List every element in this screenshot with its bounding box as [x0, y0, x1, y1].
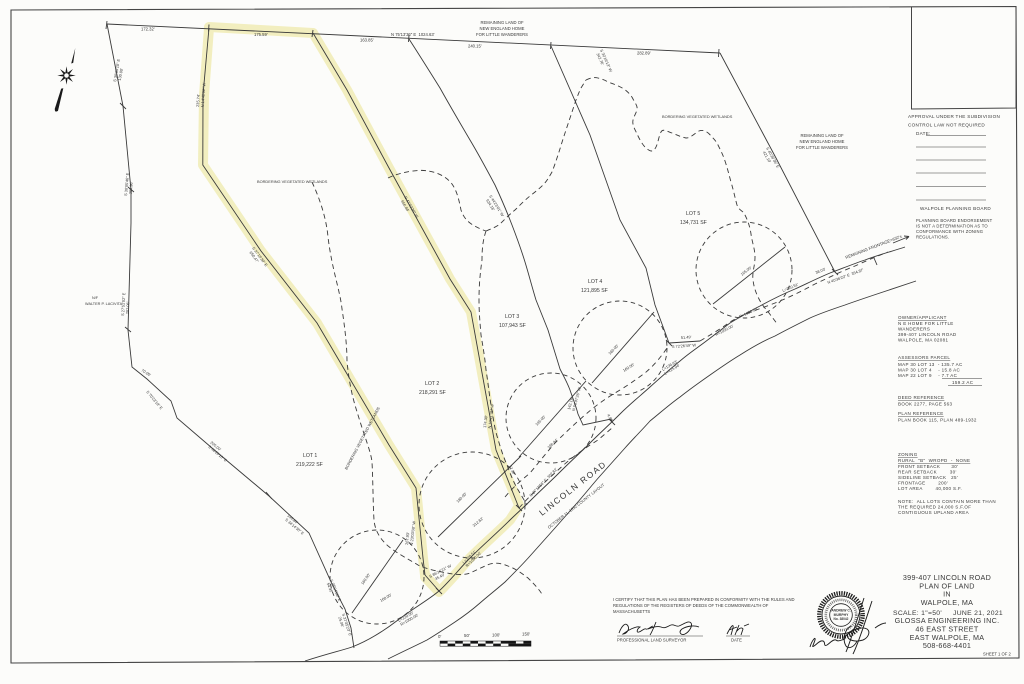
- svg-text:LOT 5: LOT 5: [686, 211, 700, 217]
- svg-text:SHEET 1 OF 2: SHEET 1 OF 2: [983, 652, 1012, 657]
- svg-text:163.85': 163.85': [360, 38, 374, 43]
- svg-text:WANDERERS: WANDERERS: [898, 327, 930, 332]
- svg-text:50': 50': [464, 633, 470, 638]
- svg-text:202.06': 202.06': [125, 301, 131, 314]
- svg-text:THE REQUIRED 24,000 S.F.OF: THE REQUIRED 24,000 S.F.OF: [898, 505, 971, 510]
- svg-text:150': 150': [522, 632, 530, 637]
- svg-text:LOT AREA 40,000 S.F.: LOT AREA 40,000 S.F.: [898, 486, 962, 491]
- svg-text:51.49': 51.49': [681, 334, 692, 340]
- svg-text:MAP 30 LOT 4 - 15.8 AC: MAP 30 LOT 4 - 15.8 AC: [898, 368, 961, 373]
- svg-text:FRONT SETBACK 30': FRONT SETBACK 30': [898, 464, 958, 469]
- svg-text:107,943 SF: 107,943 SF: [499, 323, 526, 329]
- svg-text:N E HOME FOR LITTLE: N E HOME FOR LITTLE: [898, 321, 954, 326]
- svg-text:121,895 SF: 121,895 SF: [581, 288, 608, 294]
- svg-text:I CERTIFY THAT THIS PLAN HAS B: I CERTIFY THAT THIS PLAN HAS BEEN PREPAR…: [613, 597, 795, 602]
- svg-text:REGULATIONS OF THE REGISTERS O: REGULATIONS OF THE REGISTERS OF DEEDS OF…: [613, 603, 769, 608]
- svg-text:0': 0': [438, 634, 441, 639]
- svg-text:100': 100': [492, 633, 500, 638]
- svg-text:FRONTAGE 200': FRONTAGE 200': [898, 481, 948, 486]
- svg-text:DATE: DATE: [731, 638, 742, 643]
- svg-text:WALPOLE, MA: WALPOLE, MA: [921, 598, 974, 607]
- svg-text:REAR SETBACK 30': REAR SETBACK 30': [898, 470, 957, 475]
- svg-text:MURPHY: MURPHY: [834, 613, 849, 617]
- svg-text:NEW ENGLAND HOME: NEW ENGLAND HOME: [480, 26, 525, 31]
- svg-text:159.2 AC: 159.2 AC: [952, 380, 974, 385]
- svg-text:134,731 SF: 134,731 SF: [680, 220, 707, 226]
- svg-text:FOR LITTLE WANDERERS: FOR LITTLE WANDERERS: [796, 145, 848, 150]
- svg-text:BOOK 2277, PAGE 563: BOOK 2277, PAGE 563: [898, 402, 952, 407]
- svg-text:NOTE: ALL LOTS CONTAIN MORE T: NOTE: ALL LOTS CONTAIN MORE THAN: [898, 499, 996, 504]
- svg-text:No. 38042: No. 38042: [834, 617, 849, 621]
- svg-text:SIDELINE SETBACK 25': SIDELINE SETBACK 25': [898, 475, 958, 480]
- svg-text:ASSESSORS PARCEL: ASSESSORS PARCEL: [898, 355, 950, 360]
- svg-text:WALPOLE, MA 02081: WALPOLE, MA 02081: [898, 338, 948, 343]
- svg-text:BORDERING VEGETATED WETLANDS: BORDERING VEGETATED WETLANDS: [662, 114, 733, 119]
- svg-text:MAP 30 LOT 13 - 135.7 AC: MAP 30 LOT 13 - 135.7 AC: [898, 362, 963, 367]
- svg-text:LOT 1: LOT 1: [303, 453, 317, 459]
- svg-text:REMAINING LAND OF: REMAINING LAND OF: [480, 20, 523, 25]
- svg-text:PLAN REFERENCE: PLAN REFERENCE: [898, 411, 944, 416]
- svg-text:CONTIGUOUS UPLAND AREA: CONTIGUOUS UPLAND AREA: [898, 510, 969, 515]
- svg-text:219,222 SF: 219,222 SF: [296, 462, 323, 468]
- svg-text:LOT 2: LOT 2: [425, 381, 439, 387]
- svg-text:N 75'13'36" E 1024.63': N 75'13'36" E 1024.63': [391, 32, 435, 37]
- svg-text:172.32': 172.32': [141, 27, 155, 32]
- svg-text:CONFORMANCE WITH ZONING: CONFORMANCE WITH ZONING: [916, 229, 983, 234]
- svg-text:IS NOT A DETERMINATION AS TO: IS NOT A DETERMINATION AS TO: [916, 224, 988, 229]
- svg-text:WALTER P. LACIVITA: WALTER P. LACIVITA: [85, 302, 123, 306]
- svg-text:399-407 LINCOLN ROAD: 399-407 LINCOLN ROAD: [898, 332, 957, 337]
- svg-text:PLANNING BOARD ENDORSEMENT: PLANNING BOARD ENDORSEMENT: [916, 218, 993, 223]
- svg-text:RURAL "B" WROPD - NONE: RURAL "B" WROPD - NONE: [898, 458, 970, 463]
- svg-text:FOR LITTLE WANDERERS: FOR LITTLE WANDERERS: [476, 32, 528, 37]
- svg-text:CONTROL LAW NOT REQUIRED: CONTROL LAW NOT REQUIRED: [908, 123, 985, 128]
- svg-text:240.15': 240.15': [468, 44, 482, 49]
- svg-text:WALPOLE PLANNING BOARD: WALPOLE PLANNING BOARD: [920, 206, 991, 211]
- svg-text:MAP 22 LOT 9 - 7.7 AC: MAP 22 LOT 9 - 7.7 AC: [898, 373, 958, 378]
- svg-text:REGULATIONS.: REGULATIONS.: [916, 235, 949, 240]
- svg-text:PROFESSIONAL LAND SURVEYOR: PROFESSIONAL LAND SURVEYOR: [617, 638, 686, 643]
- svg-text:PLAN BOOK 115, PLAN 489-1932: PLAN BOOK 115, PLAN 489-1932: [898, 418, 977, 423]
- svg-text:REMAINING LAND OF: REMAINING LAND OF: [800, 133, 843, 138]
- svg-text:ZONING: ZONING: [898, 452, 918, 457]
- svg-text:MASSACHUSETTS: MASSACHUSETTS: [613, 609, 650, 614]
- svg-text:LOT 3: LOT 3: [505, 314, 519, 320]
- svg-text:N/F: N/F: [92, 296, 99, 300]
- svg-text:175.59': 175.59': [254, 32, 268, 37]
- svg-text:DEED REFERENCE: DEED REFERENCE: [898, 395, 944, 400]
- svg-text:BORDERING VEGETATED WETLANDS: BORDERING VEGETATED WETLANDS: [257, 179, 328, 184]
- svg-text:NEW ENGLAND HOME: NEW ENGLAND HOME: [800, 139, 845, 144]
- svg-text:218,291 SF: 218,291 SF: [419, 390, 446, 396]
- svg-text:APPROVAL UNDER THE SUBDIVISION: APPROVAL UNDER THE SUBDIVISION: [908, 114, 1000, 119]
- svg-text:LOT 4: LOT 4: [588, 279, 602, 285]
- svg-text:282.89': 282.89': [637, 51, 651, 56]
- svg-text:OWNER/APPLICANT: OWNER/APPLICANT: [898, 315, 947, 320]
- svg-text:508-668-4401: 508-668-4401: [923, 641, 971, 650]
